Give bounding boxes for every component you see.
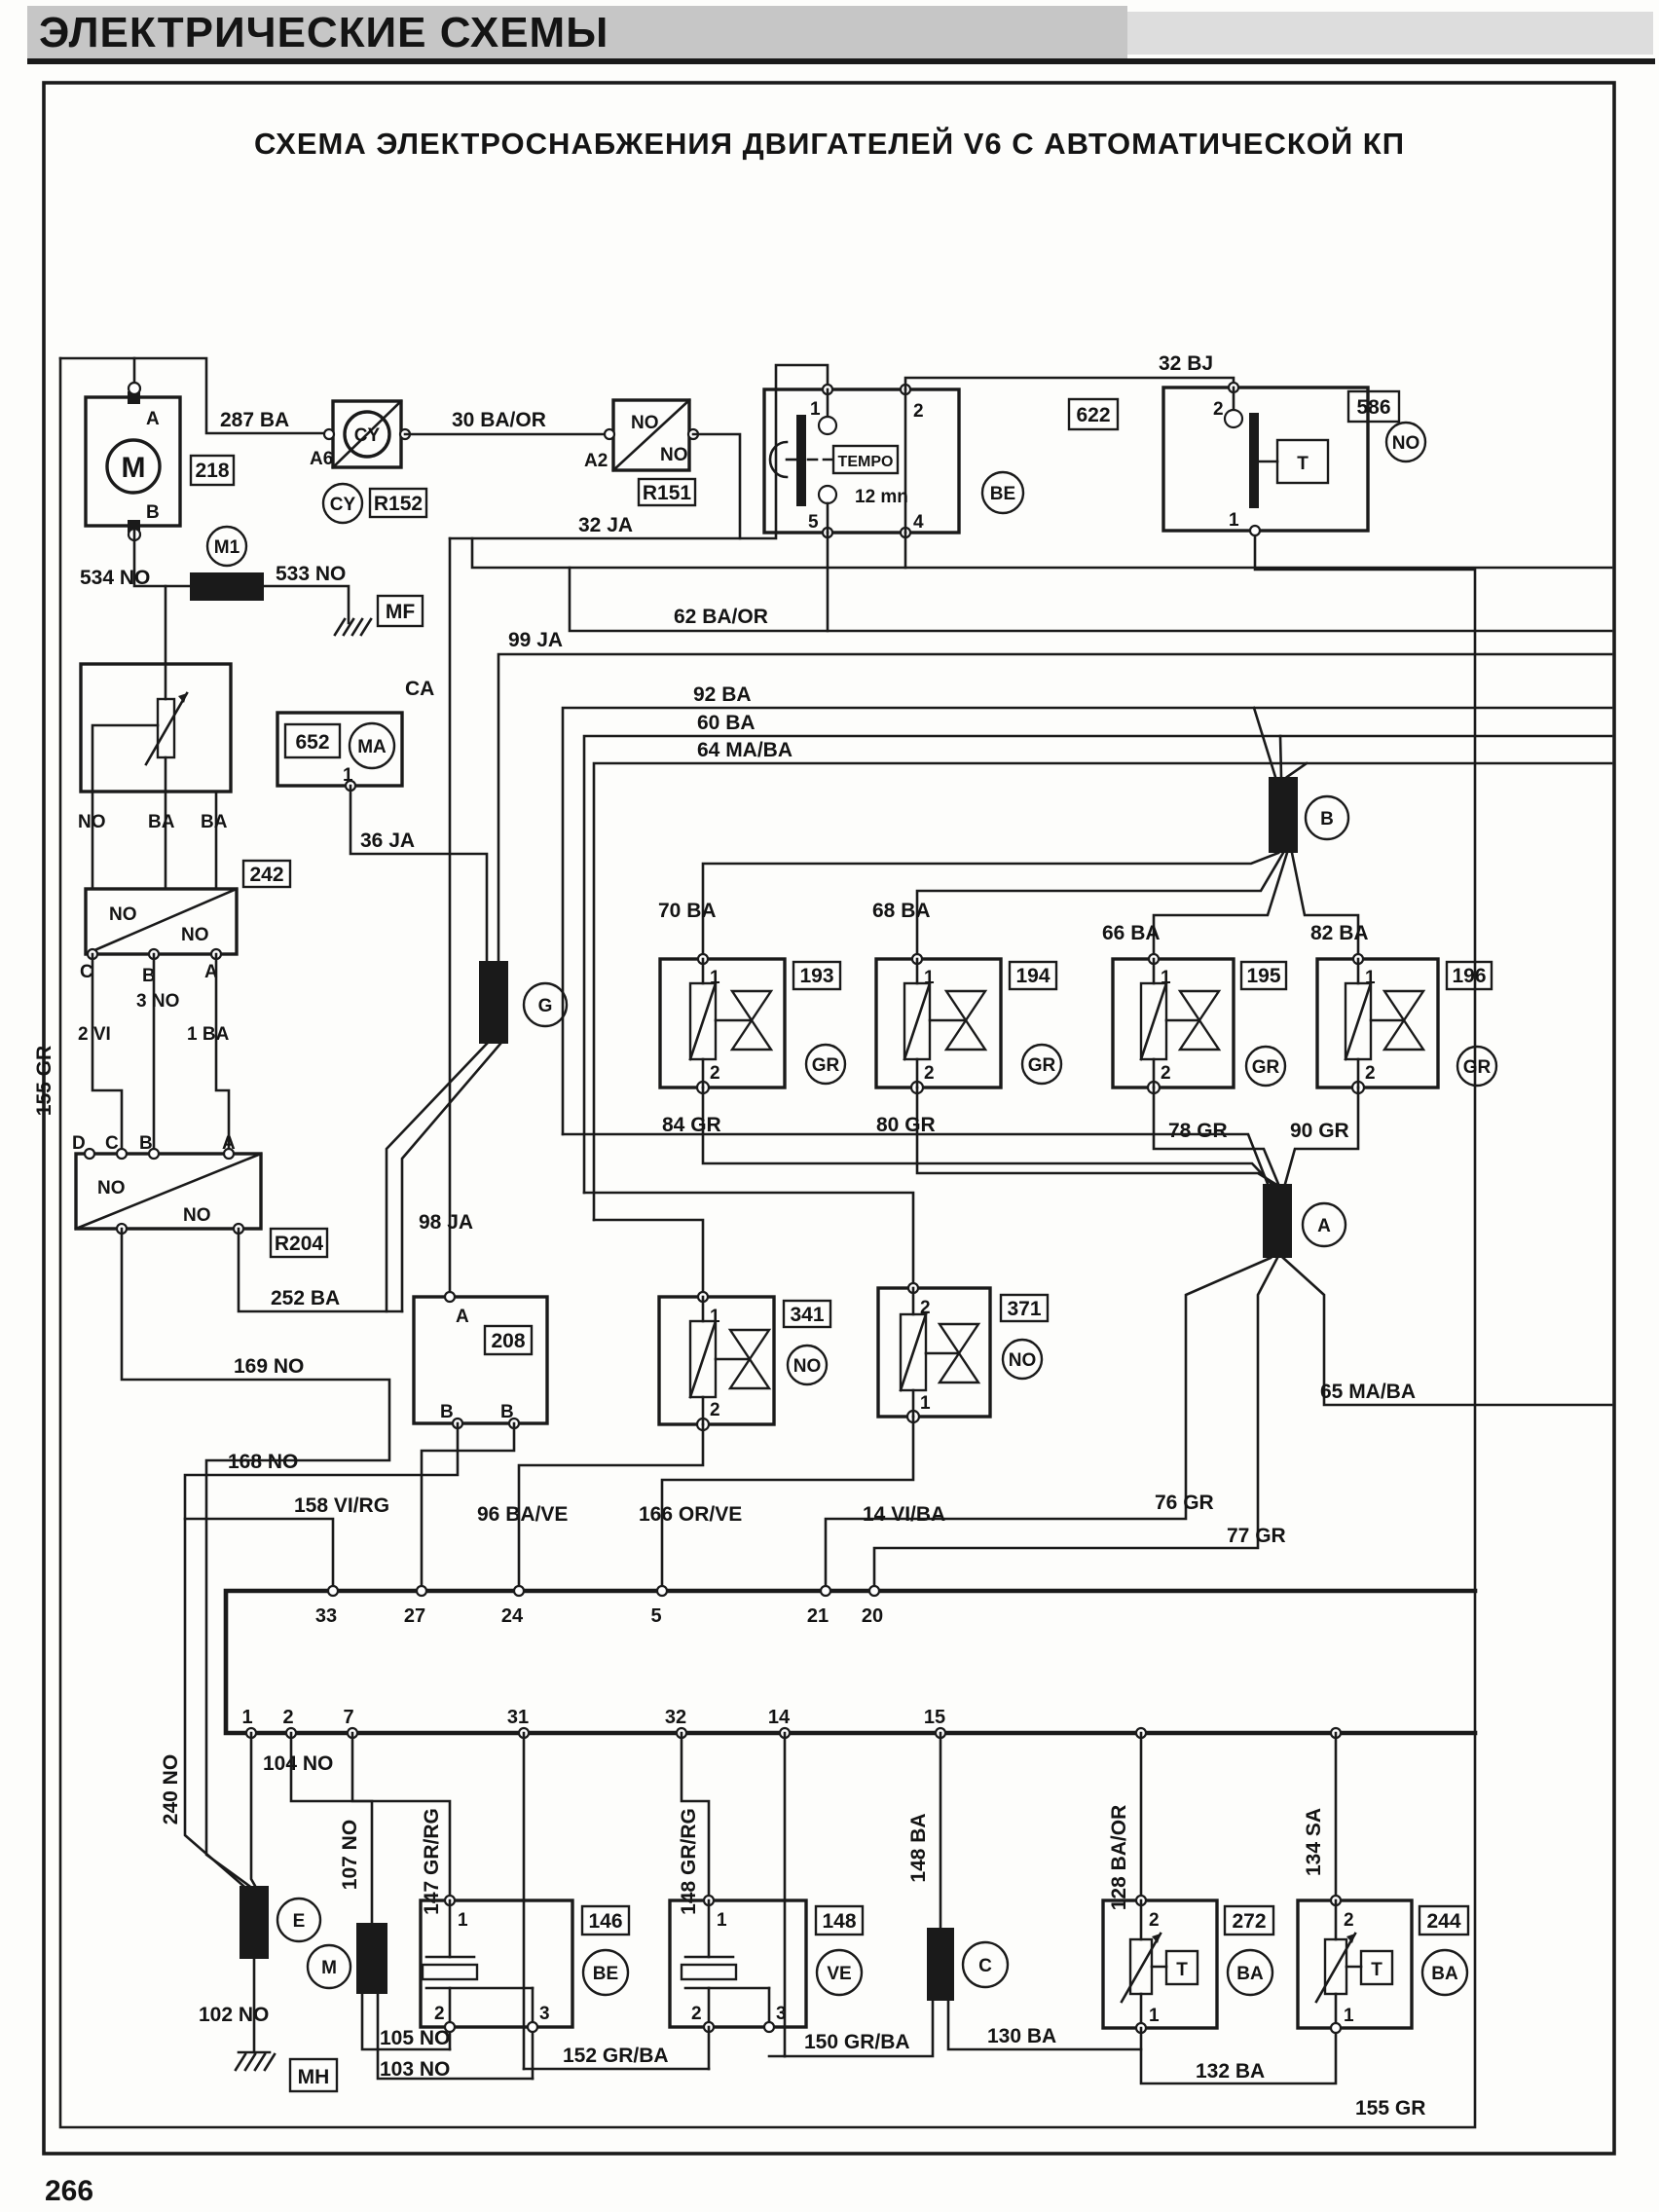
ground-symbol-mf (335, 619, 371, 635)
component-id-242: 242 (249, 864, 283, 886)
272-letter-t: T (1176, 1960, 1188, 1980)
wiring-diagram: ЭЛЕКТРИЧЕСКИЕ СХЕМЫ СХЕМА ЭЛЕКТРОСНАБЖЕН… (0, 0, 1659, 2212)
temp-sensor-244: 2 T 1 244 BA (1298, 1896, 1468, 2033)
relay-pin-2: 2 (913, 401, 924, 422)
page-number: 266 (45, 2175, 93, 2207)
device-148: 1 2 3 148 VE (670, 1896, 863, 2032)
wire-label-155-gr-bottom: 155 GR (1355, 2097, 1425, 2120)
242-block-no1: NO (109, 904, 137, 925)
wire-label-240-no: 240 NO (160, 1754, 182, 1825)
ground-id-mf: MF (386, 601, 415, 623)
wire-2-vi: 2 VI (78, 1024, 111, 1045)
194-pin-2: 2 (924, 1063, 935, 1084)
component-id-244: 244 (1426, 1910, 1460, 1933)
341-pin-2: 2 (710, 1400, 720, 1420)
header-rule (27, 58, 1655, 64)
bus2-terminal-32: 32 (665, 1707, 686, 1728)
wire-label-252-ba: 252 BA (271, 1287, 340, 1309)
component-id-622: 622 (1076, 404, 1110, 426)
splice-b: B (1254, 708, 1348, 853)
pin-a2: A2 (584, 451, 608, 471)
component-id-r204: R204 (275, 1233, 324, 1255)
wire-label-166-or-ve: 166 OR/VE (639, 1503, 742, 1526)
component-id-195: 195 (1246, 965, 1280, 987)
wire-152: 152 GR/BA (524, 2027, 709, 2069)
wire-label-76-gr: 76 GR (1155, 1492, 1214, 1514)
temp-sensor-272: 2 T 1 272 BA 132 BA (1103, 1896, 1336, 2083)
586-letter-t: T (1297, 454, 1309, 474)
wire-label-132-ba: 132 BA (1196, 2060, 1265, 2083)
wire-label-68-ba: 68 BA (872, 900, 931, 922)
bus2-terminal-15: 15 (924, 1707, 945, 1728)
component-id-208: 208 (491, 1330, 525, 1352)
wire-label-36-ja: 36 JA (360, 829, 415, 852)
wire-label-70-ba: 70 BA (658, 900, 717, 922)
wire-label-128-ba-or: 128 BA/OR (1108, 1805, 1130, 1911)
component-id-146: 146 (588, 1910, 622, 1933)
wire-label-62-ba-or: 62 BA/OR (674, 606, 768, 628)
wire-label-64-ma-ba: 64 MA/BA (697, 739, 793, 761)
195-pin-2: 2 (1161, 1063, 1171, 1084)
bus1-terminal-33: 33 (315, 1605, 337, 1627)
148-pin-3: 3 (776, 2004, 787, 2024)
motor-218: M A B 218 287 BA (60, 358, 327, 540)
injector-196: 82 BA 1 2 196 GR 90 GR (1285, 853, 1496, 1184)
r204-no1: NO (97, 1178, 126, 1198)
272-color-ba: BA (1236, 1964, 1264, 1984)
bus2-terminal-2: 2 (282, 1707, 293, 1728)
diagram-title: СХЕМА ЭЛЕКТРОСНАБЖЕНИЯ ДВИГАТЕЛЕЙ V6 С А… (254, 126, 1405, 161)
fuse-letter-m1: M1 (214, 537, 240, 558)
wire-label-103-no: 103 NO (380, 2058, 450, 2081)
r204-pin-b: B (139, 1133, 153, 1154)
relay-coil-arc (770, 442, 787, 477)
splice-g: G (387, 961, 567, 1311)
242-wire-ba1: BA (148, 812, 175, 832)
bus2-terminal-14: 14 (768, 1707, 791, 1728)
wire-label-169-no: 169 NO (234, 1355, 304, 1378)
r204-no2: NO (183, 1205, 211, 1226)
bus2-terminal-7: 7 (343, 1707, 353, 1728)
wire-label-32-ja: 32 JA (578, 514, 633, 536)
bus2-terminal-1: 1 (241, 1707, 252, 1728)
wire-label-32-bj: 32 BJ (1159, 352, 1213, 375)
272-pin-2: 2 (1149, 1910, 1160, 1931)
341-color-no: NO (793, 1356, 822, 1377)
148-pin-2: 2 (691, 2004, 702, 2024)
r204-pin-a: A (222, 1133, 236, 1154)
connector-cy-r152: CY A6 CY R152 30 BA/OR (310, 401, 609, 523)
splice-letter-a: A (1317, 1216, 1331, 1236)
ground-id-mh: MH (298, 2066, 330, 2088)
wire-label-ca: CA (405, 678, 434, 700)
wire-1-ba: 1 BA (187, 1024, 230, 1045)
component-id-r152: R152 (374, 493, 423, 515)
solenoid-371: 2 1 371 NO 14 VI/BA (584, 1193, 1048, 1591)
wire-label-148-ba: 148 BA (907, 1813, 930, 1882)
586-pin-2: 2 (1213, 399, 1224, 420)
148-color-ve: VE (827, 1964, 851, 1984)
244-letter-t: T (1371, 1960, 1382, 1980)
component-id-272: 272 (1232, 1910, 1266, 1933)
wire-label-66-ba: 66 BA (1102, 922, 1161, 944)
relay-pin-1: 1 (810, 399, 821, 420)
244-color-ba: BA (1431, 1964, 1458, 1984)
component-id-218: 218 (195, 460, 229, 482)
148-pin-1: 1 (717, 1910, 727, 1931)
r204-pin-c: C (105, 1133, 119, 1154)
component-id-194: 194 (1015, 965, 1050, 987)
splice-e-ground-mh: E 102 NO MH (199, 1886, 337, 2091)
relay-tempo-label: TEMPO (838, 454, 894, 470)
splice-letter-e: E (293, 1911, 306, 1932)
wire-label-14-vi-ba: 14 VI/BA (863, 1503, 945, 1526)
244-pin-2: 2 (1344, 1910, 1354, 1931)
splice-c: C 150 GR/BA 130 BA (769, 1928, 1141, 2056)
wire-label-82-ba: 82 BA (1310, 922, 1369, 944)
wire-label-104-no: 104 NO (263, 1752, 333, 1775)
motor-pin-b: B (146, 502, 160, 523)
connector-letter-cy: CY (354, 425, 381, 446)
splice-letter-b: B (1320, 809, 1334, 829)
sensor-652-ma: 652 MA 1 36 JA (277, 713, 487, 961)
wire-label-155-gr-left: 155 GR (33, 1046, 55, 1116)
146-pin-2: 2 (434, 2004, 445, 2024)
586-color-no: NO (1392, 433, 1420, 454)
wire-label-150-gr-ba: 150 GR/BA (804, 2031, 910, 2053)
header-background-fade (1127, 12, 1653, 55)
component-id-148: 148 (822, 1910, 856, 1933)
wire-158: 158 VI/RG (185, 1494, 389, 1591)
wire-label-533-no: 533 NO (276, 563, 346, 585)
page-header: ЭЛЕКТРИЧЕСКИЕ СХЕМЫ (27, 6, 1655, 64)
splice-letter-c: C (978, 1956, 992, 1976)
wire-label-534-no: 534 NO (80, 567, 150, 589)
wire-label-84-gr: 84 GR (662, 1114, 721, 1136)
bus1-terminal-5: 5 (650, 1605, 661, 1627)
242-wire-no: NO (78, 812, 106, 832)
relay-12mn-label: 12 mn (855, 487, 908, 507)
242-wire-ba2: BA (201, 812, 228, 832)
wire-label-30-ba-or: 30 BA/OR (452, 409, 546, 431)
relay-letter-cy: CY (330, 495, 356, 515)
component-id-586: 586 (1356, 396, 1390, 419)
bus1-terminal-20: 20 (862, 1605, 883, 1627)
wire-label-77-gr: 77 GR (1227, 1525, 1286, 1547)
196-pin-2: 2 (1365, 1063, 1376, 1084)
371-color-no: NO (1009, 1350, 1037, 1371)
solenoid-341: 1 2 341 NO 166 OR/VE (519, 1220, 830, 1591)
193-color-gr: GR (812, 1055, 840, 1076)
bus1-terminal-21: 21 (807, 1605, 829, 1627)
146-pin-1: 1 (458, 1910, 468, 1931)
scanned-manual-page: ЭЛЕКТРИЧЕСКИЕ СХЕМЫ СХЕМА ЭЛЕКТРОСНАБЖЕН… (0, 0, 1659, 2212)
wire-label-98-ja: 98 JA (419, 1211, 473, 1234)
wire-label-152-gr-ba: 152 GR/BA (563, 2045, 669, 2067)
wire-label-92-ba: 92 BA (693, 683, 752, 706)
nono-bottom-label: NO (660, 445, 688, 465)
component-id-341: 341 (790, 1304, 824, 1326)
wire-label-287-ba: 287 BA (220, 409, 289, 431)
nono-top-label: NO (631, 413, 659, 433)
146-pin-3: 3 (539, 2004, 550, 2024)
195-color-gr: GR (1252, 1057, 1280, 1078)
component-id-371: 371 (1007, 1298, 1041, 1320)
relay-pin-5: 5 (808, 512, 819, 533)
wire-label-60-ba: 60 BA (697, 712, 756, 734)
motor-letter: M (122, 452, 146, 484)
193-pin-2: 2 (710, 1063, 720, 1084)
distribution-rails: 62 BA/OR 99 JA 92 BA 60 BA 64 MA/BA (472, 538, 1611, 1220)
272-pin-1: 1 (1149, 2006, 1160, 2026)
relay-pin-4: 4 (913, 512, 924, 533)
652-letter-ma: MA (357, 737, 387, 757)
242-block-no2: NO (181, 925, 209, 945)
bus1-terminal-27: 27 (404, 1605, 425, 1627)
wire-label-158-vi-rg: 158 VI/RG (294, 1494, 389, 1517)
wire-label-90-gr: 90 GR (1290, 1120, 1349, 1142)
relay-color-be: BE (990, 484, 1015, 504)
wire-label-99-ja: 99 JA (508, 629, 563, 651)
component-id-193: 193 (799, 965, 833, 987)
sensor-242: NO BA BA NO NO 242 C B A 3 NO 2 VI 1 BA (78, 586, 290, 1154)
component-id-652: 652 (295, 731, 329, 754)
wire-label-130-ba: 130 BA (987, 2025, 1056, 2047)
wire-label-80-gr: 80 GR (876, 1114, 936, 1136)
wire-label-168-no: 168 NO (228, 1451, 298, 1473)
wire-label-78-gr: 78 GR (1168, 1120, 1228, 1142)
bus2-terminal-31: 31 (507, 1707, 529, 1728)
ecu-bus-connector: 33 27 24 5 21 20 1 2 7 31 32 14 15 (226, 1586, 1475, 1738)
146-color-be: BE (593, 1964, 618, 1984)
component-id-196: 196 (1452, 965, 1486, 987)
fuse-m1-ground-mf: M1 534 NO 533 NO MF (80, 526, 423, 635)
splice-letter-m: M (321, 1958, 337, 1978)
motor-pin-a: A (146, 409, 160, 429)
r204-pin-d: D (72, 1133, 86, 1154)
page-header-title: ЭЛЕКТРИЧЕСКИЕ СХЕМЫ (39, 9, 608, 56)
208-pin-b1: B (440, 1402, 454, 1422)
208-pin-a: A (456, 1307, 469, 1327)
wire-label-134-sa: 134 SA (1303, 1808, 1325, 1876)
thermal-switch-586: 2 T 1 586 NO (1163, 383, 1425, 535)
244-pin-1: 1 (1344, 2006, 1354, 2026)
196-color-gr: GR (1463, 1057, 1492, 1078)
371-pin-1: 1 (920, 1393, 931, 1414)
586-pin-1: 1 (1229, 510, 1239, 531)
wire-label-102-no: 102 NO (199, 2004, 269, 2026)
wire-label-96-ba-ve: 96 BA/VE (477, 1503, 568, 1526)
wire-label-65-ma-ba: 65 MA/BA (1320, 1381, 1416, 1403)
wire-label-107-no: 107 NO (339, 1820, 361, 1890)
wire-3-no: 3 NO (136, 991, 179, 1012)
splice-letter-g: G (538, 996, 553, 1016)
bus1-terminal-24: 24 (501, 1605, 524, 1627)
wire-label-105-no: 105 NO (380, 2027, 450, 2049)
pin-a6: A6 (310, 449, 333, 469)
194-color-gr: GR (1028, 1055, 1056, 1076)
component-id-r151: R151 (643, 482, 692, 504)
